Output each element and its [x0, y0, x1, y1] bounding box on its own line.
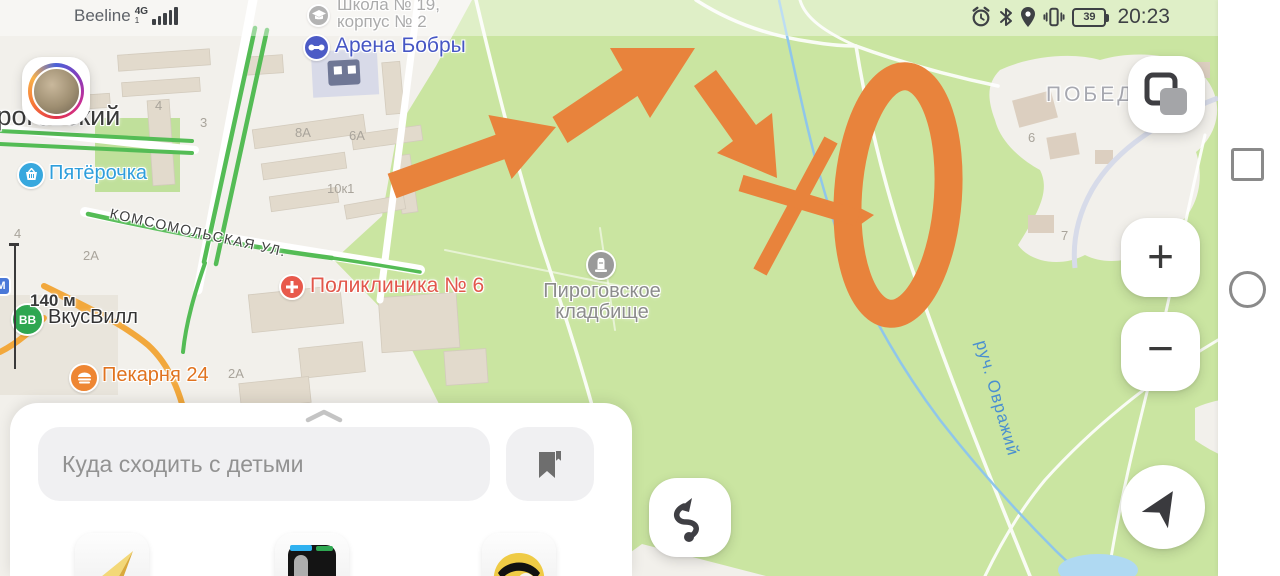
carrier-label: Beeline	[74, 6, 131, 26]
plus-icon: +	[1147, 233, 1174, 279]
home-button[interactable]	[1229, 271, 1266, 308]
navigator-app-icon	[85, 543, 139, 576]
bluetooth-icon	[999, 6, 1013, 28]
sheet-drag-handle[interactable]	[305, 409, 343, 423]
stream-label: руч. Овражий	[971, 338, 1023, 458]
house-number: 7	[1061, 228, 1068, 243]
transport-app-icon	[282, 543, 342, 576]
bookmarks-button[interactable]	[506, 427, 594, 501]
house-number: 4	[14, 226, 21, 241]
house-number: 2А	[228, 366, 244, 381]
house-number: 6А	[349, 128, 365, 143]
network-type-label: 4G1	[135, 7, 148, 25]
bottom-sheet[interactable]	[10, 403, 632, 576]
avatar	[32, 67, 81, 116]
clinic-label[interactable]: Поликлиника № 6	[310, 274, 484, 298]
app-screen: Пироговский Арена Бобры Школа № 19, корп…	[0, 0, 1280, 576]
layers-icon	[1143, 71, 1191, 119]
zoom-out-button[interactable]: −	[1121, 312, 1200, 391]
layers-button[interactable]	[1128, 56, 1205, 133]
house-number: 8А	[295, 125, 311, 140]
battery-icon: 39	[1072, 8, 1106, 27]
status-bar: Beeline 4G1	[0, 0, 1218, 36]
arena-poi-icon[interactable]	[303, 34, 330, 61]
minus-icon: −	[1147, 325, 1174, 371]
bookmark-icon	[535, 448, 565, 480]
android-nav-bar	[1218, 0, 1280, 576]
signal-strength-icon	[152, 7, 178, 25]
bakery-label[interactable]: Пекарня 24	[102, 364, 209, 387]
clock-label: 20:23	[1117, 5, 1170, 29]
cemetery-poi-icon[interactable]	[586, 250, 616, 280]
location-icon	[1020, 6, 1036, 28]
clinic-poi-icon[interactable]	[279, 274, 305, 300]
house-number: 4	[155, 98, 162, 113]
battery-percent: 39	[1083, 11, 1095, 23]
transport-app-tile[interactable]	[275, 533, 349, 576]
profile-avatar-button[interactable]	[22, 57, 90, 125]
alarm-icon	[970, 6, 992, 28]
zoom-in-button[interactable]: +	[1121, 218, 1200, 297]
pyaterochka-poi-icon[interactable]	[17, 161, 45, 189]
street-label: КОМСОМОЛЬСКАЯ УЛ.	[109, 205, 289, 260]
route-button[interactable]	[649, 478, 731, 557]
navigator-app-tile[interactable]	[75, 533, 149, 576]
arena-label[interactable]: Арена Бобры	[335, 34, 466, 58]
route-icon	[665, 493, 715, 543]
pyaterochka-label[interactable]: Пятёрочка	[49, 162, 147, 185]
transit-stop-icon[interactable]: М	[0, 276, 11, 296]
locate-me-button[interactable]	[1121, 465, 1205, 549]
scale-bar	[14, 243, 17, 369]
search-input[interactable]	[38, 427, 490, 501]
house-number: 2А	[83, 248, 99, 263]
cemetery-label[interactable]: Пироговское кладбище	[537, 281, 667, 323]
vibrate-icon	[1043, 6, 1065, 28]
house-number: 3	[200, 115, 207, 130]
taxi-app-tile[interactable]	[482, 533, 556, 576]
recents-button[interactable]	[1231, 148, 1264, 181]
navigation-arrow-icon	[1141, 485, 1185, 529]
bakery-poi-icon[interactable]	[69, 363, 99, 393]
house-number: 10к1	[327, 181, 354, 196]
house-number: 6	[1028, 130, 1035, 145]
avatar-ring	[28, 63, 84, 119]
taxi-app-icon	[488, 543, 550, 576]
scale-label: 140 м	[30, 291, 76, 311]
